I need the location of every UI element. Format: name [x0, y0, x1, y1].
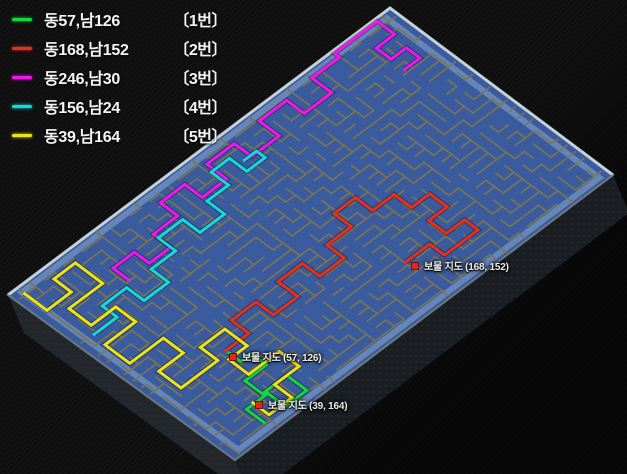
legend-route-number: 〔2번〕 — [173, 36, 227, 60]
route-color-swatch — [12, 76, 32, 79]
legend: 동57,남126〔1번〕동168,남152〔2번〕동246,남30〔3번〕동15… — [12, 8, 227, 146]
route-color-swatch — [12, 105, 32, 108]
game-screen: 동57,남126〔1번〕동168,남152〔2번〕동246,남30〔3번〕동15… — [0, 0, 627, 474]
route-color-swatch — [12, 47, 32, 50]
legend-route-number: 〔5번〕 — [173, 123, 227, 147]
treasure-marker-label: 보물 지도 (39, 164) — [268, 397, 347, 412]
legend-coordinates: 동246,남30 — [44, 65, 120, 89]
route-color-swatch — [12, 134, 32, 137]
legend-item: 동57,남126〔1번〕 — [12, 8, 227, 30]
treasure-marker-icon — [255, 401, 263, 409]
legend-item: 동39,남164〔5번〕 — [12, 124, 227, 146]
treasure-marker-icon — [411, 262, 419, 270]
treasure-marker: 보물 지도 (168, 152) — [411, 258, 509, 273]
legend-route-number: 〔4번〕 — [173, 94, 227, 118]
legend-coordinates: 동57,남126 — [44, 7, 120, 31]
legend-item: 동156,남24〔4번〕 — [12, 95, 227, 117]
treasure-marker-label: 보물 지도 (168, 152) — [424, 258, 509, 273]
legend-coordinates: 동39,남164 — [44, 123, 120, 147]
route-color-swatch — [12, 18, 32, 21]
legend-route-number: 〔1번〕 — [173, 7, 227, 31]
legend-coordinates: 동168,남152 — [44, 36, 129, 60]
legend-item: 동168,남152〔2번〕 — [12, 37, 227, 59]
treasure-marker: 보물 지도 (39, 164) — [255, 397, 347, 412]
treasure-marker-label: 보물 지도 (57, 126) — [242, 349, 321, 364]
treasure-marker-icon — [229, 353, 237, 361]
legend-item: 동246,남30〔3번〕 — [12, 66, 227, 88]
legend-coordinates: 동156,남24 — [44, 94, 120, 118]
legend-route-number: 〔3번〕 — [173, 65, 227, 89]
treasure-marker: 보물 지도 (57, 126) — [229, 349, 321, 364]
